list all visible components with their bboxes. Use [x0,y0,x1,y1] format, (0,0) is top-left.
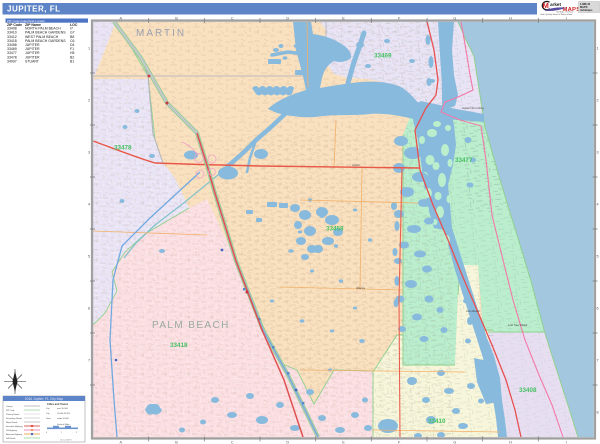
svg-text:over 50,000: over 50,000 [57,408,68,410]
svg-text:D: D [286,17,289,21]
svg-text:7: 7 [88,359,90,363]
svg-text:E: E [342,441,345,444]
svg-text:ZIP Code: ZIP Code [6,410,15,412]
svg-text:Interstate Highway: Interstate Highway [6,425,23,428]
svg-text:A: A [120,17,123,21]
svg-text:US Highway: US Highway [6,430,17,432]
svg-text:6: 6 [88,307,90,311]
svg-text:City: City [46,407,49,410]
svg-text:Town: Town [46,418,51,420]
svg-text:7: 7 [597,359,599,363]
svg-text:33478: 33478 [114,145,132,152]
svg-text:MarketMAPS: MarketMAPS [60,439,72,442]
svg-text:B: B [175,17,178,21]
svg-text:County: County [6,405,12,408]
svg-text:Scale of Miles: Scale of Miles [57,424,69,426]
svg-text:4: 4 [597,203,599,207]
svg-text:M: M [543,1,549,10]
svg-text:I: I [566,17,567,21]
svg-text:D: D [286,441,289,444]
svg-text:Lost Tree Village: Lost Tree Village [508,323,528,327]
svg-text:C: C [231,17,234,21]
svg-text:Jupiter: Jupiter [352,163,360,167]
svg-text:E: E [342,17,345,21]
svg-text:3: 3 [88,151,90,155]
svg-text:Find it Quickly! Search it! De: Find it Quickly! Search it! Deliver it N… [541,13,573,16]
svg-text:8: 8 [597,411,599,415]
svg-text:1: 1 [597,47,599,51]
svg-text:10,000-49,999: 10,000-49,999 [57,413,71,415]
svg-text:33408: 33408 [519,387,537,394]
svg-text:H: H [509,441,512,444]
svg-text:B1: B1 [70,59,74,63]
svg-text:6: 6 [597,307,599,311]
svg-text:33469: 33469 [374,53,392,60]
svg-text:City: City [46,412,49,415]
svg-text:Abacoa: Abacoa [356,286,365,290]
svg-text:Toll Roads: Toll Roads [6,438,15,440]
svg-text:2: 2 [88,99,90,103]
svg-text:Alternate Highway: Alternate Highway [6,433,22,436]
svg-text:2: 2 [597,99,599,103]
svg-text:A: A [120,441,123,444]
svg-text:2: 2 [76,432,77,434]
svg-text:under 10,000: under 10,000 [57,418,70,420]
svg-text:I: I [566,441,567,444]
svg-text:STUART: STUART [25,59,40,63]
svg-text:5: 5 [597,255,599,259]
svg-text:Secondary Roads: Secondary Roads [6,418,22,420]
svg-text:MARTIN: MARTIN [136,28,186,39]
svg-text:1: 1 [88,47,90,51]
svg-text:JUPITER, FL: JUPITER, FL [7,5,61,14]
svg-text:Jupiter Inlet Colony: Jupiter Inlet Colony [462,106,485,110]
svg-text:G: G [453,441,456,444]
svg-text:H: H [509,17,512,21]
svg-text:5: 5 [88,255,90,259]
svg-text:33410: 33410 [428,418,446,425]
svg-text:C: C [231,441,234,444]
svg-text:B: B [175,441,178,444]
svg-text:arket: arket [550,2,561,7]
svg-text:Major Roads: Major Roads [6,422,17,424]
svg-text:33477: 33477 [455,157,473,164]
svg-text:Cities and Towns: Cities and Towns [47,402,69,406]
svg-text:Juno Beach: Juno Beach [466,309,480,313]
svg-text:G: G [453,17,456,21]
svg-text:Primary Roads: Primary Roads [6,414,19,416]
svg-text:4: 4 [88,203,90,207]
svg-text:3: 3 [597,151,599,155]
svg-text:mrktmaps: mrktmaps [580,8,593,12]
svg-text:33418: 33418 [170,342,188,349]
svg-text:2016 Jupiter, FL City Map: 2016 Jupiter, FL City Map [25,397,64,401]
svg-text:0: 0 [46,432,47,434]
svg-text:1: 1 [61,432,62,434]
svg-text:PALM BEACH: PALM BEACH [152,320,230,331]
svg-text:33458: 33458 [326,226,344,233]
svg-text:34997: 34997 [7,59,17,63]
